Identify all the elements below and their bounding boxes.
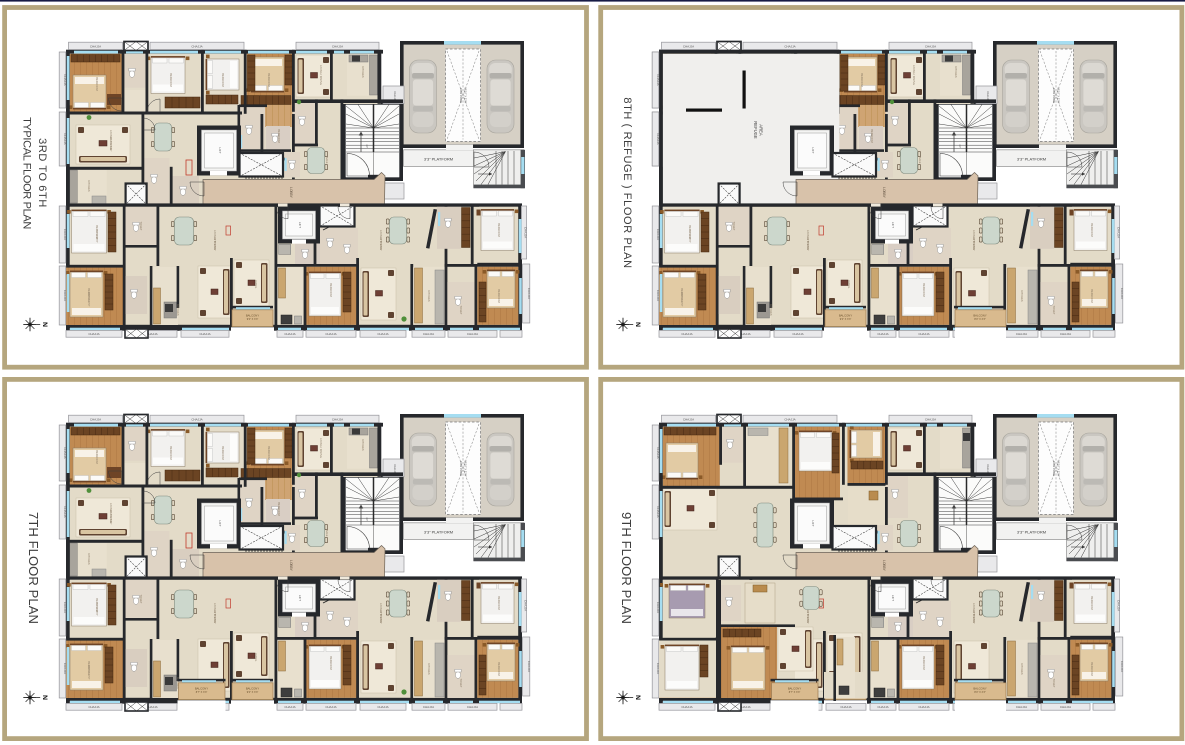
svg-text:9TH FLOOR PLAN: 9TH FLOOR PLAN — [619, 512, 634, 624]
svg-text:TYPICAL FLOOR PLAN: TYPICAL FLOOR PLAN — [21, 117, 33, 229]
svg-text:8TH ( REFUGE ) FLOOR PLAN: 8TH ( REFUGE ) FLOOR PLAN — [621, 97, 633, 268]
svg-text:3RD TO 6TH: 3RD TO 6TH — [36, 138, 48, 208]
svg-text:7TH FLOOR PLAN: 7TH FLOOR PLAN — [26, 512, 41, 624]
